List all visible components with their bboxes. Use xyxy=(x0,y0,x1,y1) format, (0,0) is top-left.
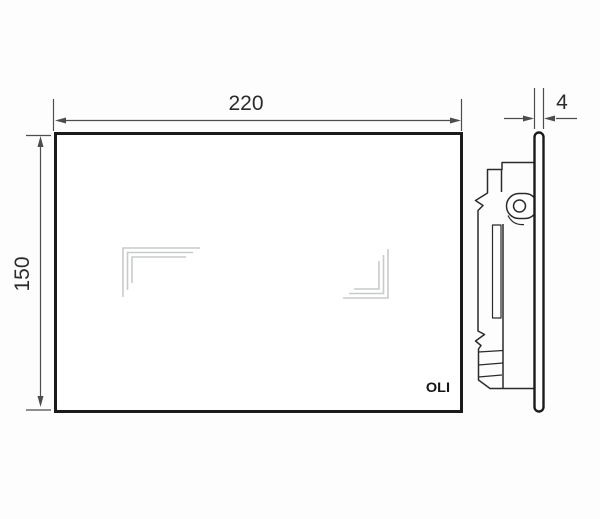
flush-plate-side-profile xyxy=(535,133,544,412)
flush-plate-front xyxy=(56,134,462,412)
drawing-linework xyxy=(0,0,600,519)
mechanism-bottom-ridges xyxy=(479,351,504,378)
dim-height-label: 150 xyxy=(12,244,34,304)
dim-height-arrow-top-icon xyxy=(38,136,44,147)
mechanism-recess xyxy=(493,225,502,318)
dim-thickness-arrow-right-icon xyxy=(544,116,555,122)
dim-width-arrow-right-icon xyxy=(450,118,461,124)
mounting-mechanism-profile xyxy=(476,163,538,389)
dim-width-arrow-left-icon xyxy=(55,118,66,124)
dim-width-label: 220 xyxy=(211,93,281,114)
dim-thickness-label: 4 xyxy=(549,92,575,113)
technical-drawing-canvas: 220 150 4 OLI xyxy=(0,0,600,519)
brand-logo: OLI xyxy=(412,380,450,396)
front-view xyxy=(56,134,462,412)
dim-height-arrow-bottom-icon xyxy=(38,396,44,407)
mounting-hole xyxy=(514,200,526,212)
side-view xyxy=(476,88,578,412)
dim-thickness-arrow-left-icon xyxy=(523,116,534,122)
